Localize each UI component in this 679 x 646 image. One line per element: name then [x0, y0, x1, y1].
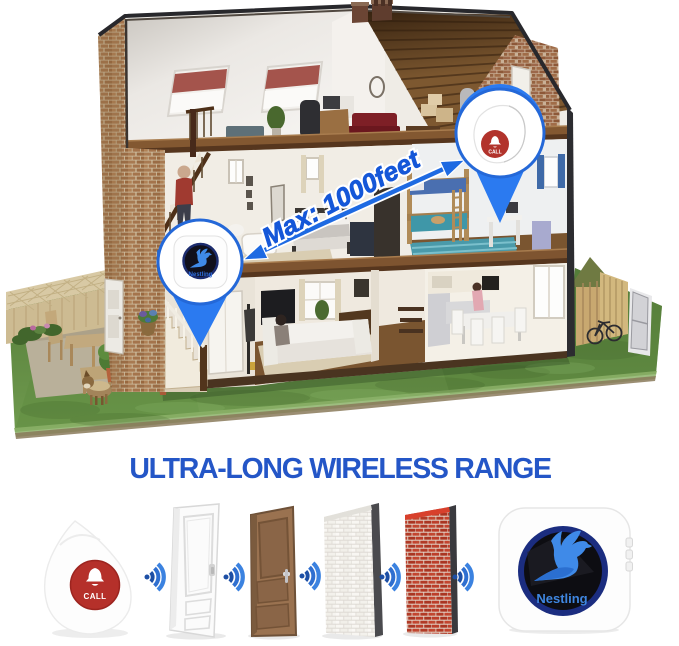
svg-text:Nestling: Nestling [536, 591, 587, 606]
svg-text:CALL: CALL [84, 592, 107, 601]
svg-text:CALL: CALL [488, 150, 501, 156]
svg-text:ULTRA-LONG WIRELESS RANGE: ULTRA-LONG WIRELESS RANGE [129, 453, 551, 485]
svg-text:Nestling: Nestling [189, 272, 213, 278]
